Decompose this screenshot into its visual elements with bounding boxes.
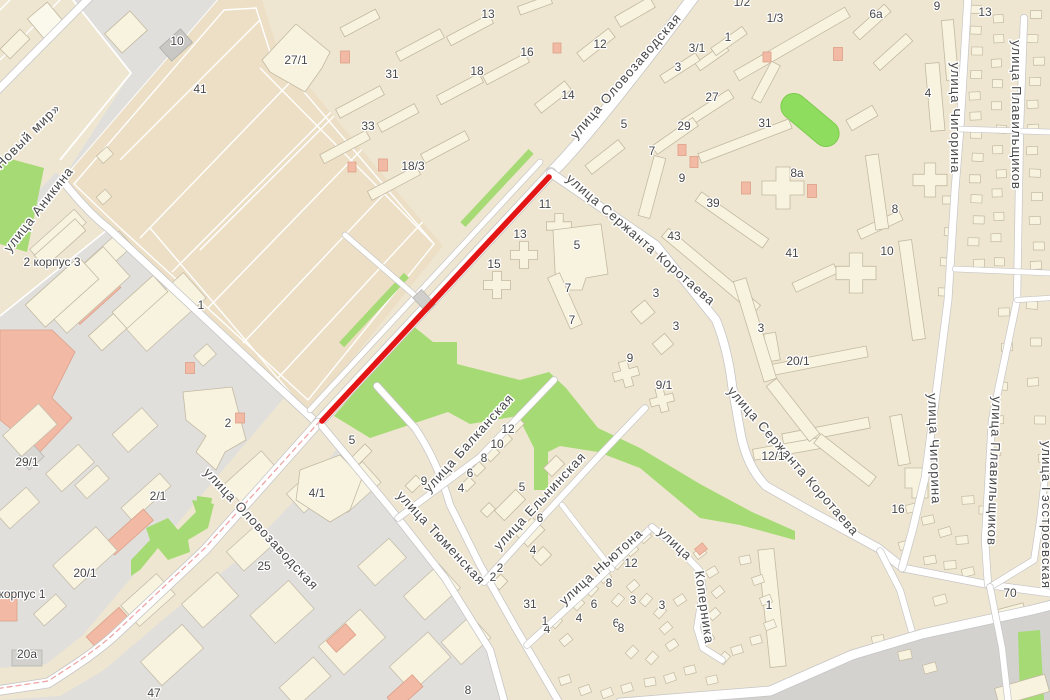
svg-text:3/1: 3/1 bbox=[689, 41, 706, 55]
svg-text:43: 43 bbox=[667, 229, 681, 243]
svg-text:10: 10 bbox=[490, 437, 504, 451]
svg-text:47: 47 bbox=[147, 686, 161, 700]
svg-text:8a: 8a bbox=[790, 166, 804, 180]
svg-text:2: 2 bbox=[497, 561, 504, 575]
svg-text:2: 2 bbox=[225, 416, 232, 430]
svg-text:8: 8 bbox=[618, 621, 625, 635]
svg-text:7: 7 bbox=[569, 313, 576, 327]
svg-text:4: 4 bbox=[576, 611, 583, 625]
svg-text:1: 1 bbox=[198, 298, 205, 312]
svg-text:13: 13 bbox=[513, 227, 527, 241]
svg-text:41: 41 bbox=[785, 246, 799, 260]
svg-text:3: 3 bbox=[673, 319, 680, 333]
svg-text:5: 5 bbox=[519, 480, 526, 494]
svg-text:улица Гэсстроевская: улица Гэсстроевская bbox=[1039, 441, 1050, 589]
svg-text:11: 11 bbox=[539, 197, 552, 211]
svg-text:15: 15 bbox=[487, 257, 501, 271]
svg-text:18: 18 bbox=[470, 64, 484, 78]
svg-text:5: 5 bbox=[574, 238, 581, 252]
svg-text:корпус 1: корпус 1 bbox=[0, 587, 46, 601]
svg-text:1/2: 1/2 bbox=[734, 0, 751, 9]
svg-text:3: 3 bbox=[758, 321, 765, 335]
svg-text:1: 1 bbox=[542, 614, 549, 628]
svg-text:8: 8 bbox=[606, 576, 613, 590]
svg-text:1: 1 bbox=[725, 30, 732, 44]
svg-text:18/3: 18/3 bbox=[401, 159, 425, 173]
svg-text:5: 5 bbox=[349, 433, 356, 447]
svg-text:10: 10 bbox=[880, 244, 894, 258]
svg-text:20/1: 20/1 bbox=[73, 566, 97, 580]
svg-text:16: 16 bbox=[520, 45, 534, 59]
svg-text:9: 9 bbox=[421, 474, 428, 488]
svg-text:2 корпус 3: 2 корпус 3 bbox=[23, 255, 80, 269]
svg-text:5: 5 bbox=[621, 117, 628, 131]
svg-text:13: 13 bbox=[978, 5, 992, 19]
svg-text:16: 16 bbox=[891, 502, 905, 516]
svg-text:14: 14 bbox=[561, 88, 575, 102]
svg-text:4: 4 bbox=[530, 543, 537, 557]
svg-text:2/1: 2/1 bbox=[150, 489, 167, 503]
svg-text:6: 6 bbox=[467, 466, 474, 480]
svg-text:4: 4 bbox=[458, 481, 465, 495]
svg-text:улица Плавильщиков: улица Плавильщиков bbox=[1009, 40, 1024, 190]
svg-text:31: 31 bbox=[758, 116, 772, 130]
svg-text:7: 7 bbox=[649, 144, 656, 158]
svg-text:8: 8 bbox=[481, 451, 488, 465]
svg-text:улица Чигорина: улица Чигорина bbox=[948, 62, 963, 173]
svg-text:70: 70 bbox=[1003, 586, 1017, 600]
svg-text:6a: 6a bbox=[869, 7, 883, 21]
svg-text:3: 3 bbox=[630, 593, 637, 607]
svg-text:9: 9 bbox=[679, 171, 686, 185]
svg-text:41: 41 bbox=[193, 82, 207, 96]
svg-text:1/3: 1/3 bbox=[767, 11, 784, 25]
svg-text:29/1: 29/1 bbox=[15, 455, 39, 469]
svg-text:31: 31 bbox=[385, 67, 399, 81]
svg-text:29: 29 bbox=[677, 119, 691, 133]
svg-text:39: 39 bbox=[706, 196, 720, 210]
svg-text:12: 12 bbox=[593, 37, 607, 51]
svg-text:20a: 20a bbox=[17, 647, 37, 661]
svg-text:2: 2 bbox=[490, 570, 497, 584]
svg-text:12: 12 bbox=[501, 422, 515, 436]
svg-text:27: 27 bbox=[705, 90, 719, 104]
svg-text:31: 31 bbox=[523, 597, 537, 611]
svg-text:6: 6 bbox=[591, 597, 598, 611]
svg-text:12: 12 bbox=[624, 556, 638, 570]
svg-text:3: 3 bbox=[659, 598, 666, 612]
svg-text:1: 1 bbox=[766, 598, 773, 612]
svg-text:8: 8 bbox=[892, 202, 899, 216]
svg-text:7: 7 bbox=[565, 281, 572, 295]
svg-text:9/1: 9/1 bbox=[656, 378, 673, 392]
svg-text:9: 9 bbox=[627, 351, 634, 365]
svg-text:3: 3 bbox=[653, 286, 660, 300]
svg-text:33: 33 bbox=[361, 119, 375, 133]
svg-text:9: 9 bbox=[934, 0, 941, 13]
svg-text:6: 6 bbox=[537, 511, 544, 525]
svg-text:13: 13 bbox=[481, 7, 495, 21]
svg-text:25: 25 bbox=[257, 559, 271, 573]
svg-text:3: 3 bbox=[675, 60, 682, 74]
svg-text:8: 8 bbox=[465, 683, 472, 697]
svg-text:20/1: 20/1 bbox=[786, 354, 810, 368]
svg-text:4: 4 bbox=[925, 86, 932, 100]
svg-text:27/1: 27/1 bbox=[284, 53, 308, 67]
svg-text:12/1: 12/1 bbox=[761, 449, 785, 463]
svg-text:10: 10 bbox=[170, 34, 184, 48]
svg-text:4/1: 4/1 bbox=[309, 486, 326, 500]
